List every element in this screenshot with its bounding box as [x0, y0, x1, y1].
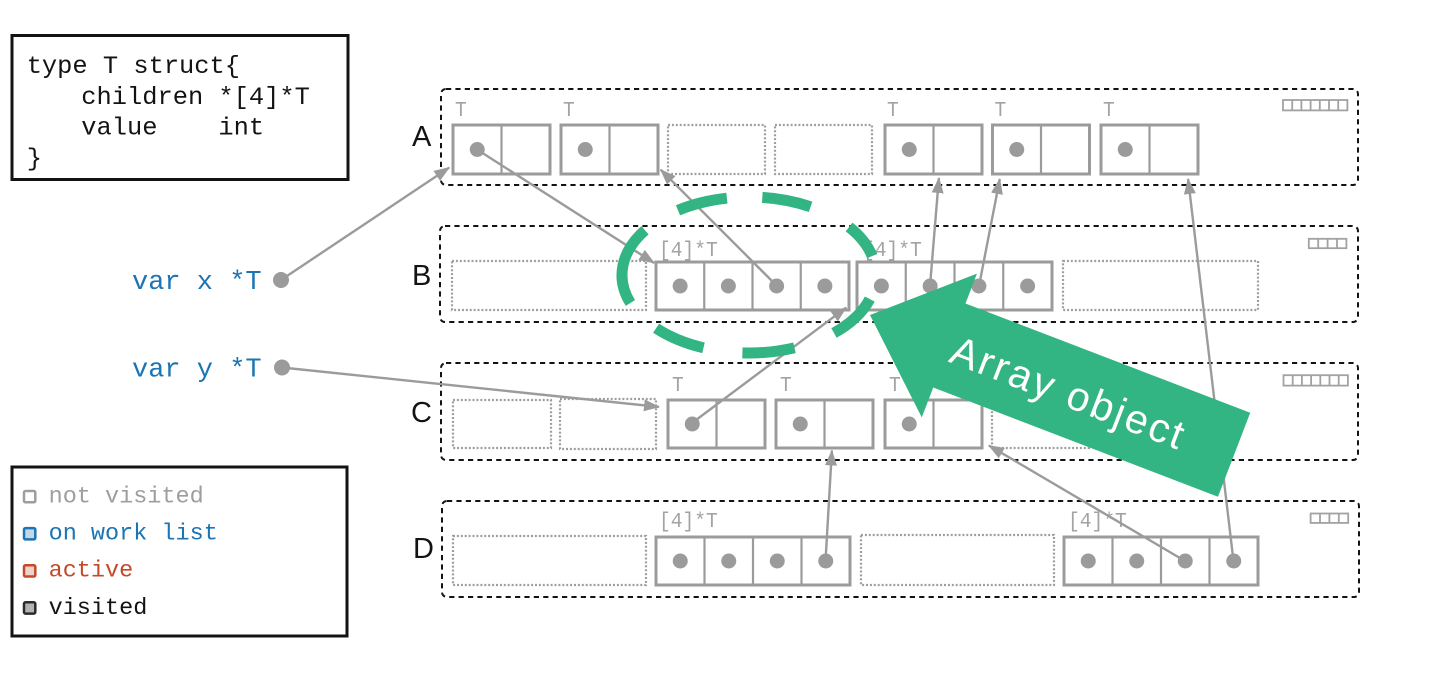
svg-text:visited: visited: [49, 595, 148, 622]
svg-text:D: D: [413, 533, 434, 565]
svg-text:children *[4]*T: children *[4]*T: [81, 83, 310, 112]
svg-text:not visited: not visited: [49, 484, 204, 511]
svg-text:T: T: [780, 375, 792, 398]
svg-text:var x *T: var x *T: [132, 268, 262, 298]
svg-text:T: T: [889, 375, 901, 398]
svg-text:type T struct{: type T struct{: [27, 52, 240, 81]
svg-text:T: T: [672, 375, 684, 398]
svg-text:T: T: [887, 100, 899, 123]
svg-text:[4]*T: [4]*T: [659, 240, 718, 263]
svg-text:A: A: [412, 121, 432, 153]
svg-text:T: T: [563, 100, 575, 123]
svg-text:T: T: [995, 100, 1007, 123]
svg-text:C: C: [411, 397, 432, 429]
svg-text:var y *T: var y *T: [132, 356, 262, 386]
svg-text:on work list: on work list: [49, 521, 218, 548]
svg-text:T: T: [1103, 100, 1115, 123]
svg-text:active: active: [49, 558, 134, 585]
svg-text:}: }: [27, 144, 42, 173]
svg-text:B: B: [412, 260, 431, 292]
svg-text:T: T: [455, 100, 467, 123]
svg-text:[4]*T: [4]*T: [659, 511, 718, 534]
svg-text:value int: value int: [81, 114, 264, 143]
